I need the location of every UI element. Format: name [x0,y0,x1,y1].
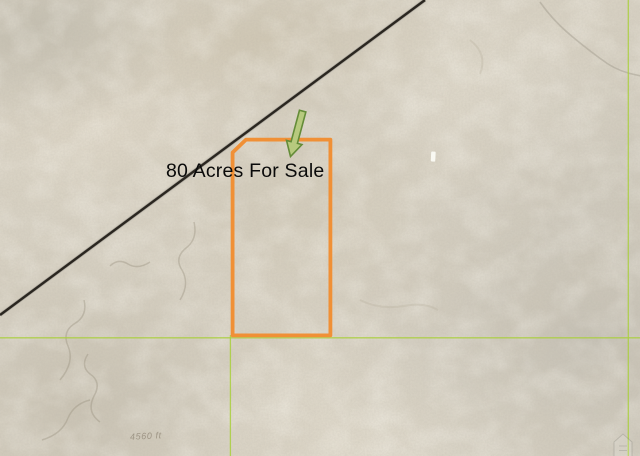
wash-marks [42,40,482,440]
watermark-logo-icon [614,434,632,456]
road-line [0,0,425,315]
parcel-pointer-arrow-icon [283,109,311,159]
sale-label: 80 Acres For Sale [166,161,324,182]
map-marker-dash [431,151,436,161]
listing-map-image: 80 Acres For Sale 4560 ft [0,0,640,456]
scale-label: 4560 ft [130,430,162,442]
trail-path [540,2,640,76]
